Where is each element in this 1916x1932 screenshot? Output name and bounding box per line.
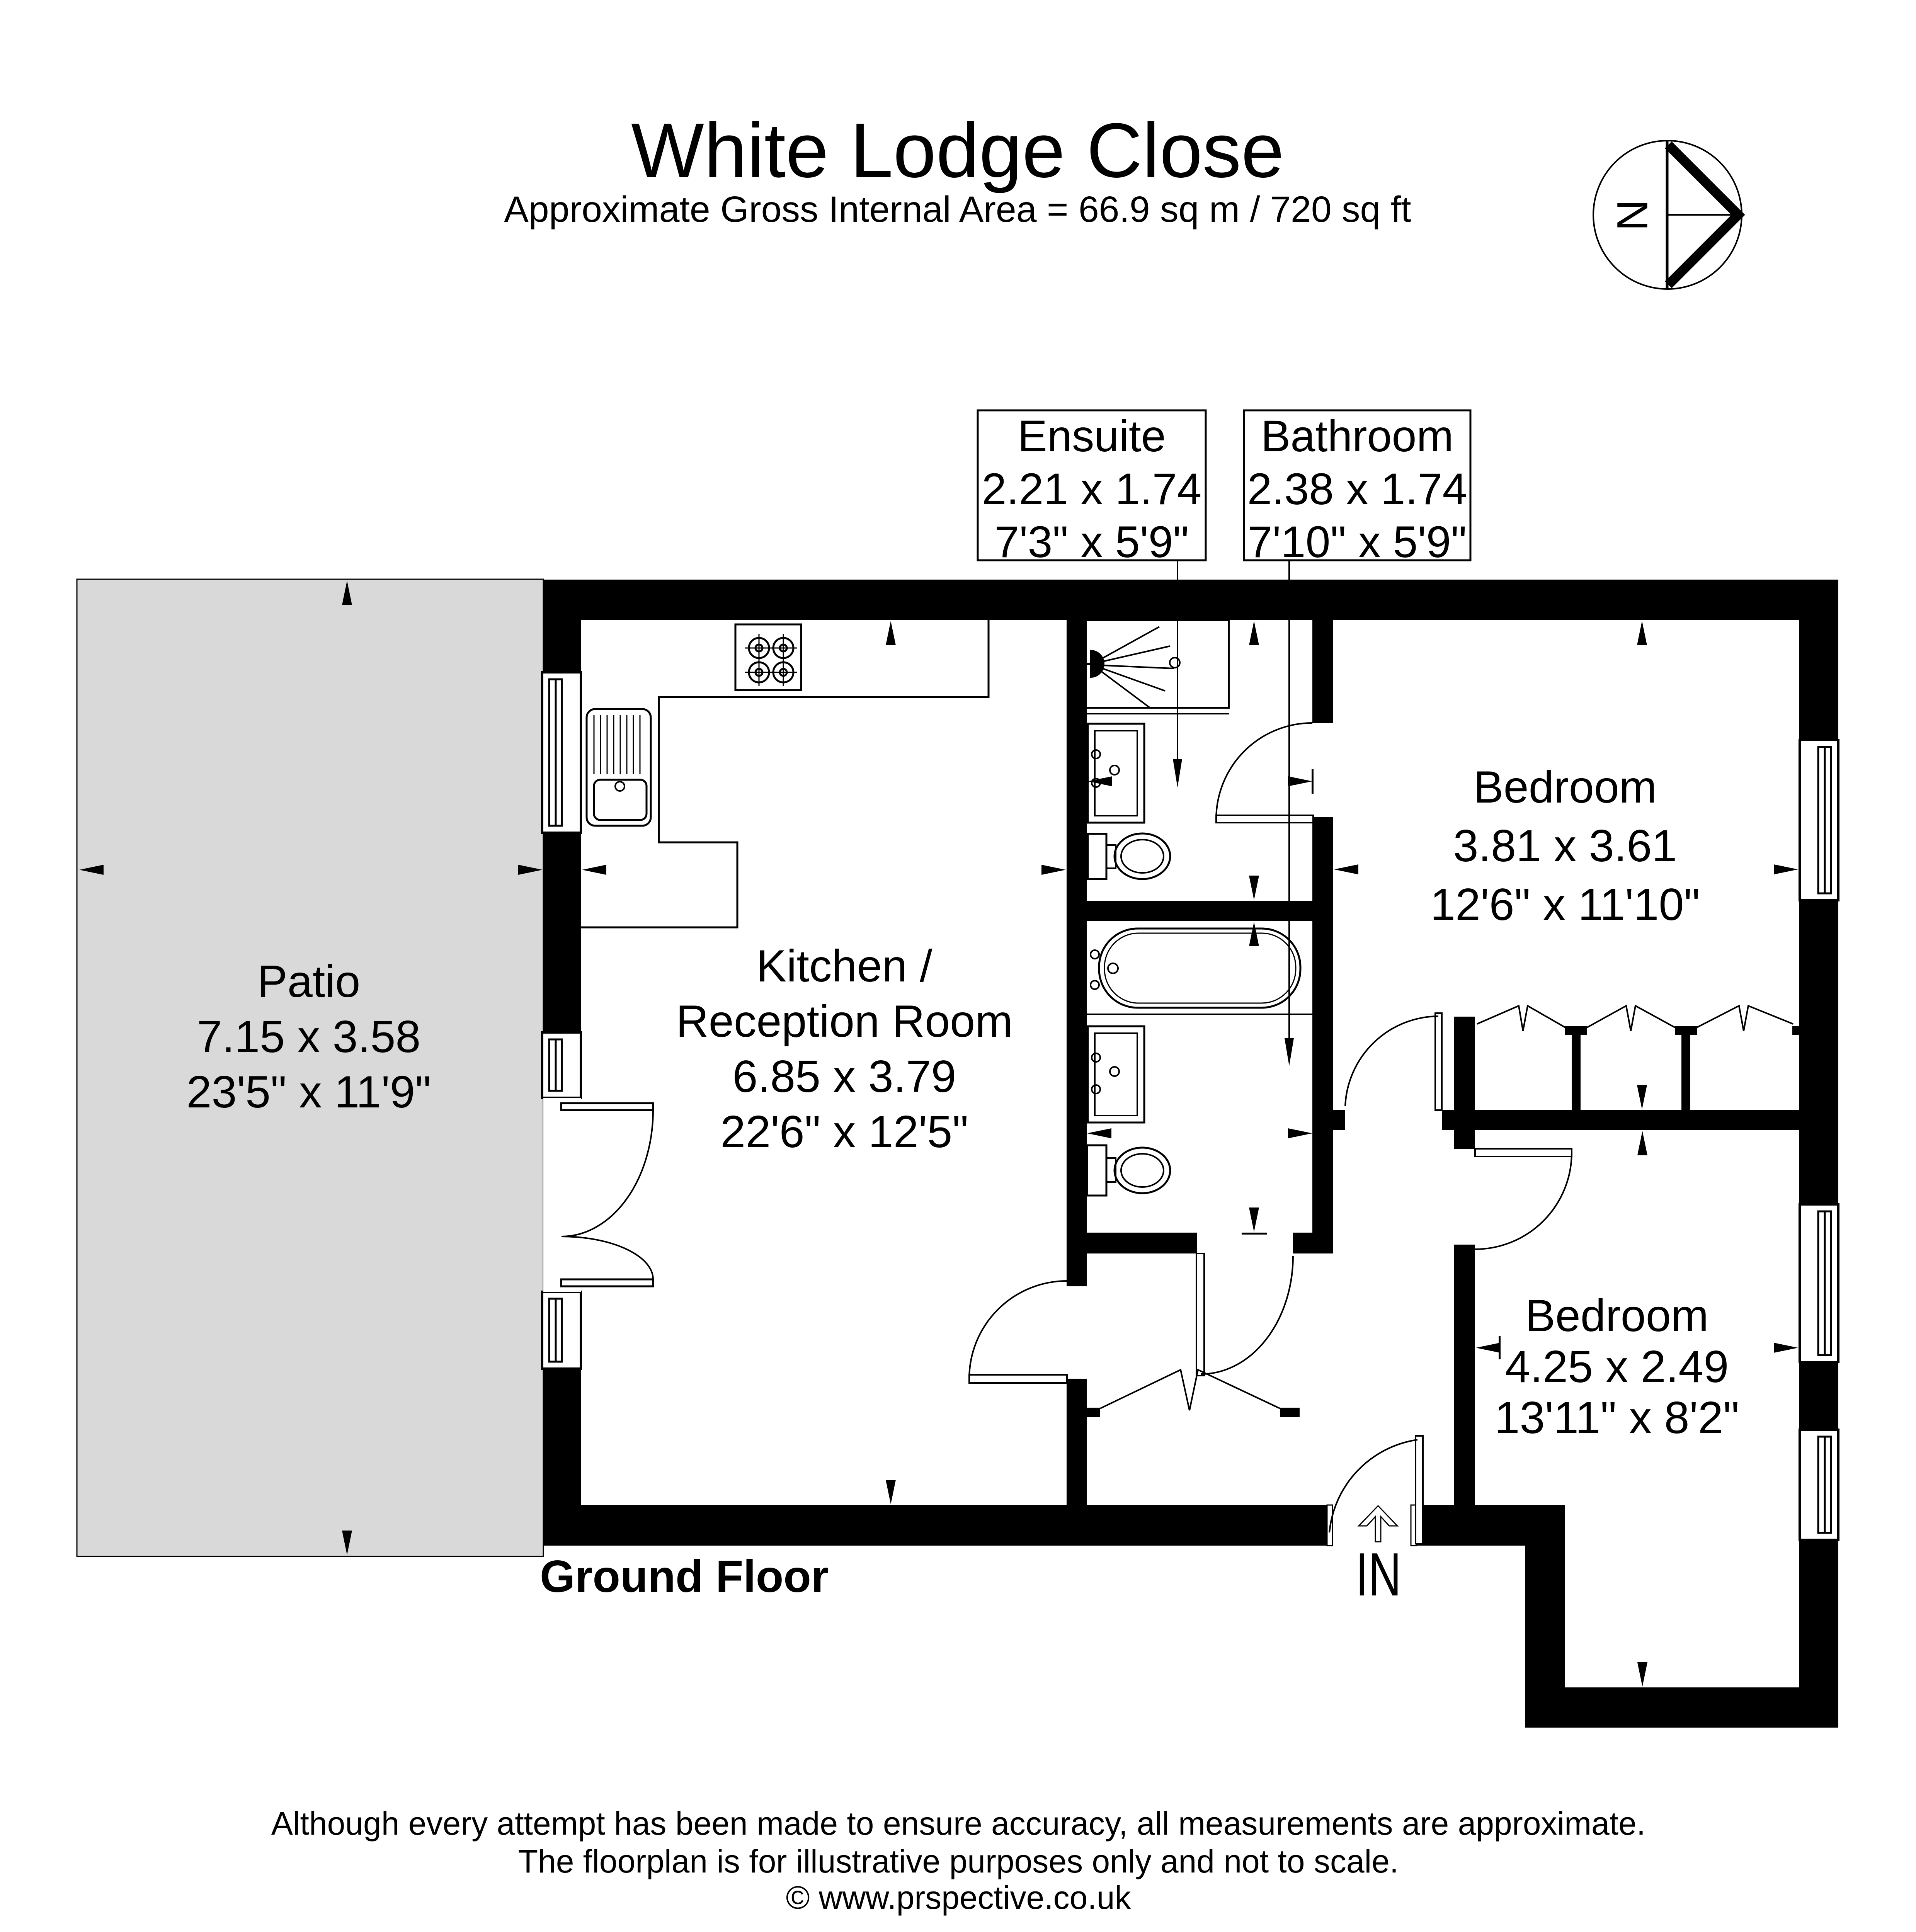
svg-text:Kitchen /: Kitchen / (756, 940, 932, 991)
svg-text:4.25 x 2.49: 4.25 x 2.49 (1505, 1341, 1729, 1392)
svg-text:Ground Floor: Ground Floor (540, 1551, 829, 1602)
svg-text:3.81 x 3.61: 3.81 x 3.61 (1453, 820, 1677, 871)
svg-text:White Lodge Close: White Lodge Close (631, 107, 1284, 194)
svg-text:Ensuite: Ensuite (1018, 412, 1166, 461)
svg-text:Although every attempt has bee: Although every attempt has been made to … (271, 1805, 1645, 1842)
svg-text:N: N (1608, 200, 1657, 231)
svg-text:The floorplan is for illustrat: The floorplan is for illustrative purpos… (518, 1843, 1399, 1879)
svg-text:© www.prspective.co.uk: © www.prspective.co.uk (786, 1879, 1132, 1916)
svg-text:Patio: Patio (257, 956, 361, 1007)
svg-text:7.15 x 3.58: 7.15 x 3.58 (197, 1011, 421, 1062)
svg-text:2.21 x 1.74: 2.21 x 1.74 (982, 464, 1201, 514)
svg-text:IN: IN (1356, 1541, 1401, 1609)
svg-text:6.85 x 3.79: 6.85 x 3.79 (733, 1051, 956, 1102)
svg-text:23'5" x 11'9": 23'5" x 11'9" (187, 1066, 431, 1117)
svg-text:Bedroom: Bedroom (1474, 762, 1657, 812)
svg-text:Bathroom: Bathroom (1261, 412, 1454, 461)
svg-text:22'6" x 12'5": 22'6" x 12'5" (720, 1106, 968, 1157)
svg-text:Reception Room: Reception Room (676, 996, 1012, 1046)
svg-text:7'10" x 5'9": 7'10" x 5'9" (1248, 517, 1467, 567)
svg-text:Bedroom: Bedroom (1525, 1290, 1709, 1341)
svg-text:12'6" x 11'10": 12'6" x 11'10" (1430, 879, 1700, 930)
svg-text:2.38 x 1.74: 2.38 x 1.74 (1247, 464, 1467, 514)
svg-text:7'3" x 5'9": 7'3" x 5'9" (995, 517, 1189, 567)
svg-text:13'11" x 8'2": 13'11" x 8'2" (1495, 1392, 1739, 1443)
svg-text:Approximate Gross Internal Are: Approximate Gross Internal Area = 66.9 s… (504, 189, 1411, 230)
